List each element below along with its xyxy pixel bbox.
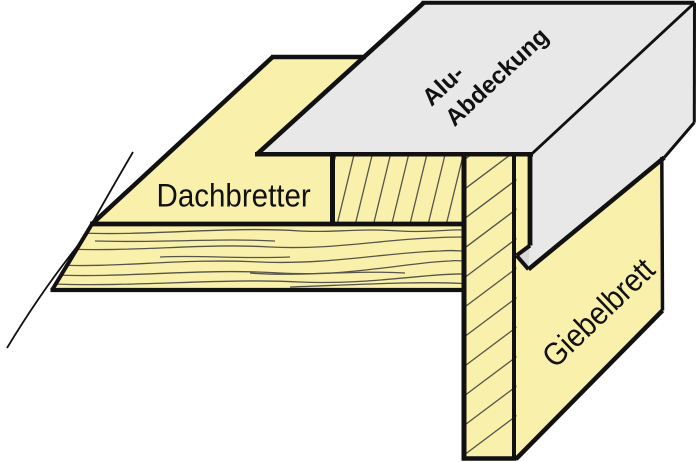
svg-text:Dachbretter: Dachbretter	[157, 178, 311, 214]
